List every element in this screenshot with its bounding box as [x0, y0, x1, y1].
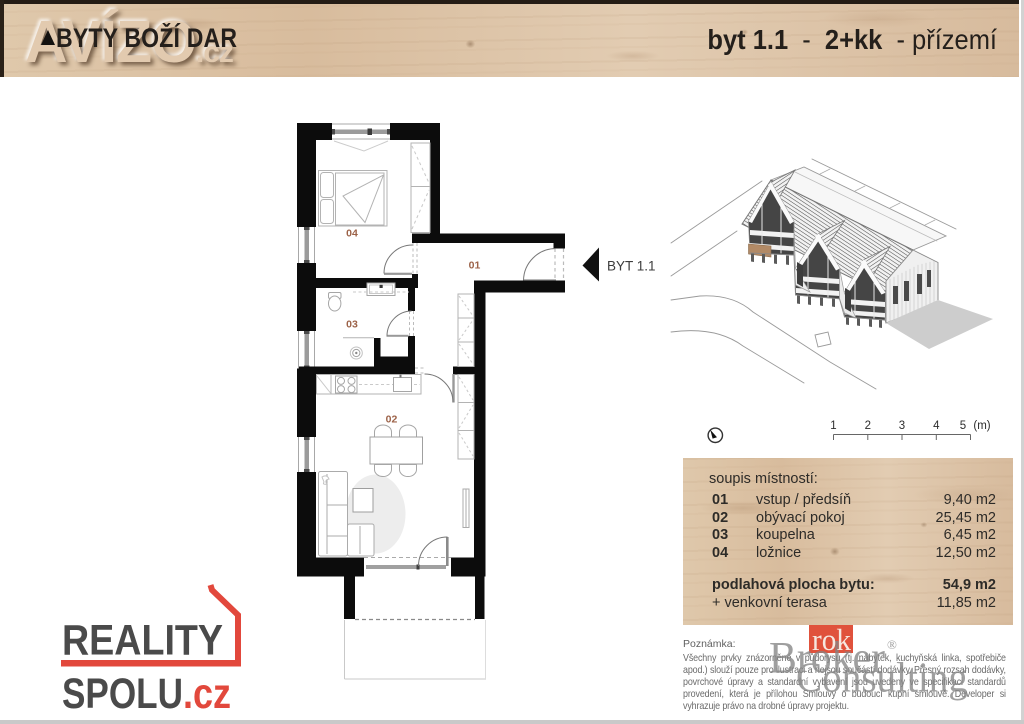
svg-text:03: 03 — [346, 319, 358, 331]
svg-text:1: 1 — [830, 420, 836, 432]
svg-text:04: 04 — [346, 228, 358, 240]
svg-text:02: 02 — [386, 414, 398, 426]
svg-text:2: 2 — [865, 420, 871, 432]
svg-text:5: 5 — [960, 420, 966, 432]
svg-text:4: 4 — [933, 420, 940, 432]
svg-text:01: 01 — [469, 260, 481, 272]
svg-text:3: 3 — [899, 420, 905, 432]
svg-text:BYT 1.1: BYT 1.1 — [607, 259, 656, 274]
svg-text:(m): (m) — [973, 420, 990, 432]
